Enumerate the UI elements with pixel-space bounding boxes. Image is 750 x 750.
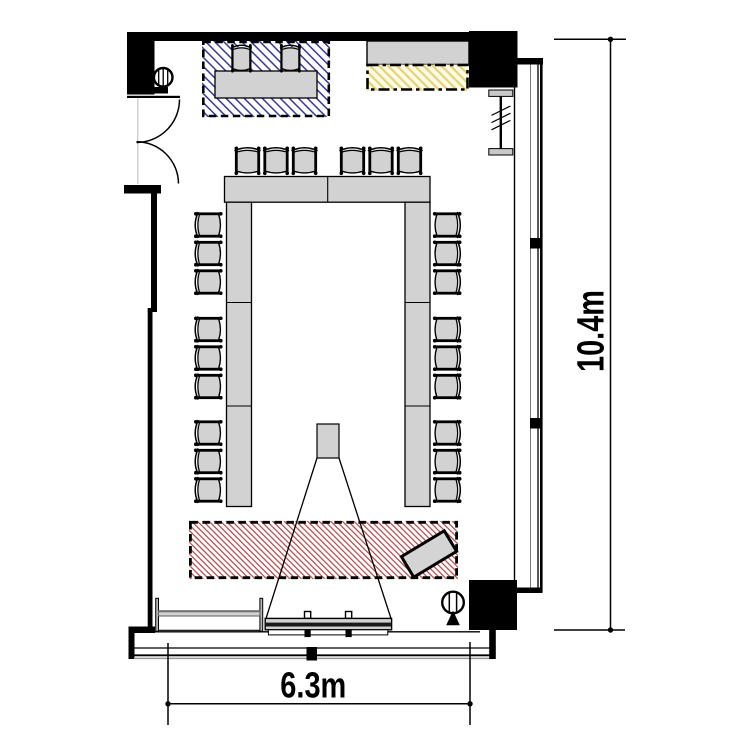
svg-text:10.4m: 10.4m (571, 290, 613, 372)
svg-text:6.3m: 6.3m (280, 664, 346, 705)
